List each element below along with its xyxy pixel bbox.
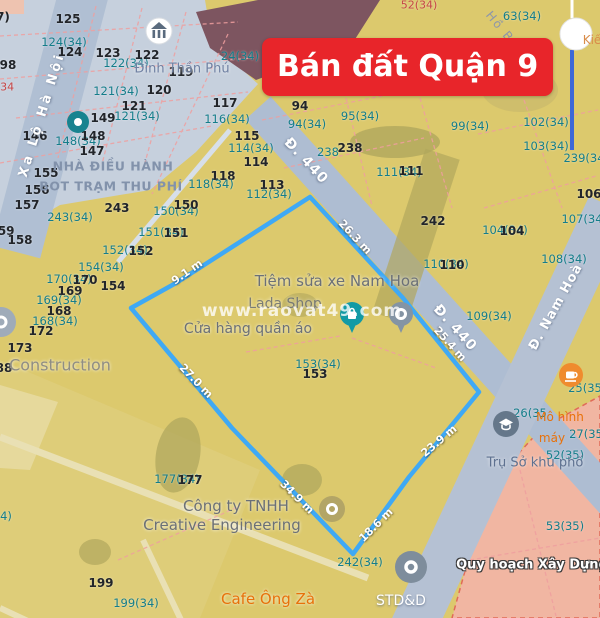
planning-overlay-label: Quy hoạch Xây Dựng <box>456 558 600 573</box>
place-label-mo-hinh-1[interactable]: Mô hình <box>536 410 584 424</box>
place-label-nha-dieu-hanh-1: NHÀ ĐIỀU HÀNH <box>53 159 174 174</box>
place-label-cua-hang-quan-ao[interactable]: Cửa hàng quần áo <box>184 321 312 337</box>
place-label-mo-hinh-2[interactable]: máy <box>539 431 565 445</box>
watermark: www.raovat49.com <box>202 301 402 321</box>
place-label-dinh-than-phu[interactable]: Đình Thần Phú <box>134 62 229 77</box>
place-label-construction[interactable]: Construction <box>9 356 111 375</box>
place-label-cafe-ong-za[interactable]: Cafe Ông Zà <box>221 590 315 608</box>
place-label-nha-dieu-hanh-2: BOT TRẠM THU PHÍ <box>39 179 182 194</box>
temple-icon[interactable] <box>145 17 173 45</box>
map-canvas[interactable]: 7)125124(34)124123122(34)122119121(34)12… <box>0 0 600 618</box>
place-label-cong-ty-1[interactable]: Công ty TNHH <box>183 497 289 515</box>
poi-dot-icon[interactable] <box>66 110 90 134</box>
place-label-cong-ty-2[interactable]: Creative Engineering <box>143 516 301 534</box>
coffee-icon[interactable] <box>558 362 584 388</box>
title-banner: Bán đất Quận 9 <box>262 38 553 96</box>
poi-circle-icon[interactable] <box>318 495 346 523</box>
place-label-std[interactable]: STD&D <box>376 593 426 609</box>
school-icon[interactable] <box>492 410 520 438</box>
pink-corner <box>0 0 24 14</box>
poi-circle-icon[interactable] <box>394 550 428 584</box>
place-label-tru-so-khu-pho[interactable]: Trụ Sở khu phố <box>487 456 584 471</box>
place-label-kie-fragment: Kiế <box>583 33 600 47</box>
place-label-tiem-sua-xe[interactable]: Tiệm sửa xe Nam Hoa <box>255 272 420 290</box>
poi-circle-icon[interactable] <box>0 306 17 338</box>
